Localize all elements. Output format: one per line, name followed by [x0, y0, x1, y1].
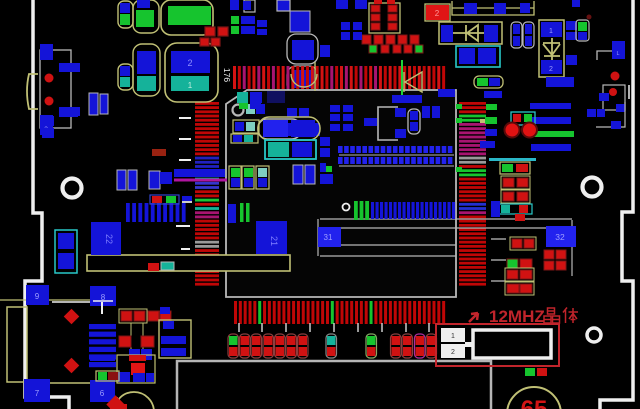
svg-text:1: 1	[188, 81, 193, 90]
svg-text:176: 176	[222, 68, 232, 82]
svg-text:32: 32	[555, 232, 565, 242]
svg-text:12MHZ: 12MHZ	[489, 307, 545, 326]
svg-text:2: 2	[549, 66, 553, 73]
svg-text:2: 2	[451, 349, 455, 356]
svg-text:22: 22	[104, 234, 114, 244]
svg-text:21: 21	[269, 236, 279, 246]
svg-text:2: 2	[187, 58, 192, 68]
svg-text:2: 2	[435, 9, 440, 18]
svg-text:31: 31	[324, 233, 333, 242]
svg-text:1: 1	[451, 333, 455, 340]
svg-text:6: 6	[100, 389, 105, 398]
svg-text:1: 1	[549, 28, 553, 35]
svg-text:7: 7	[35, 389, 40, 398]
svg-text:L: L	[616, 51, 619, 57]
svg-text:9: 9	[35, 292, 40, 301]
svg-text:65: 65	[521, 396, 548, 409]
